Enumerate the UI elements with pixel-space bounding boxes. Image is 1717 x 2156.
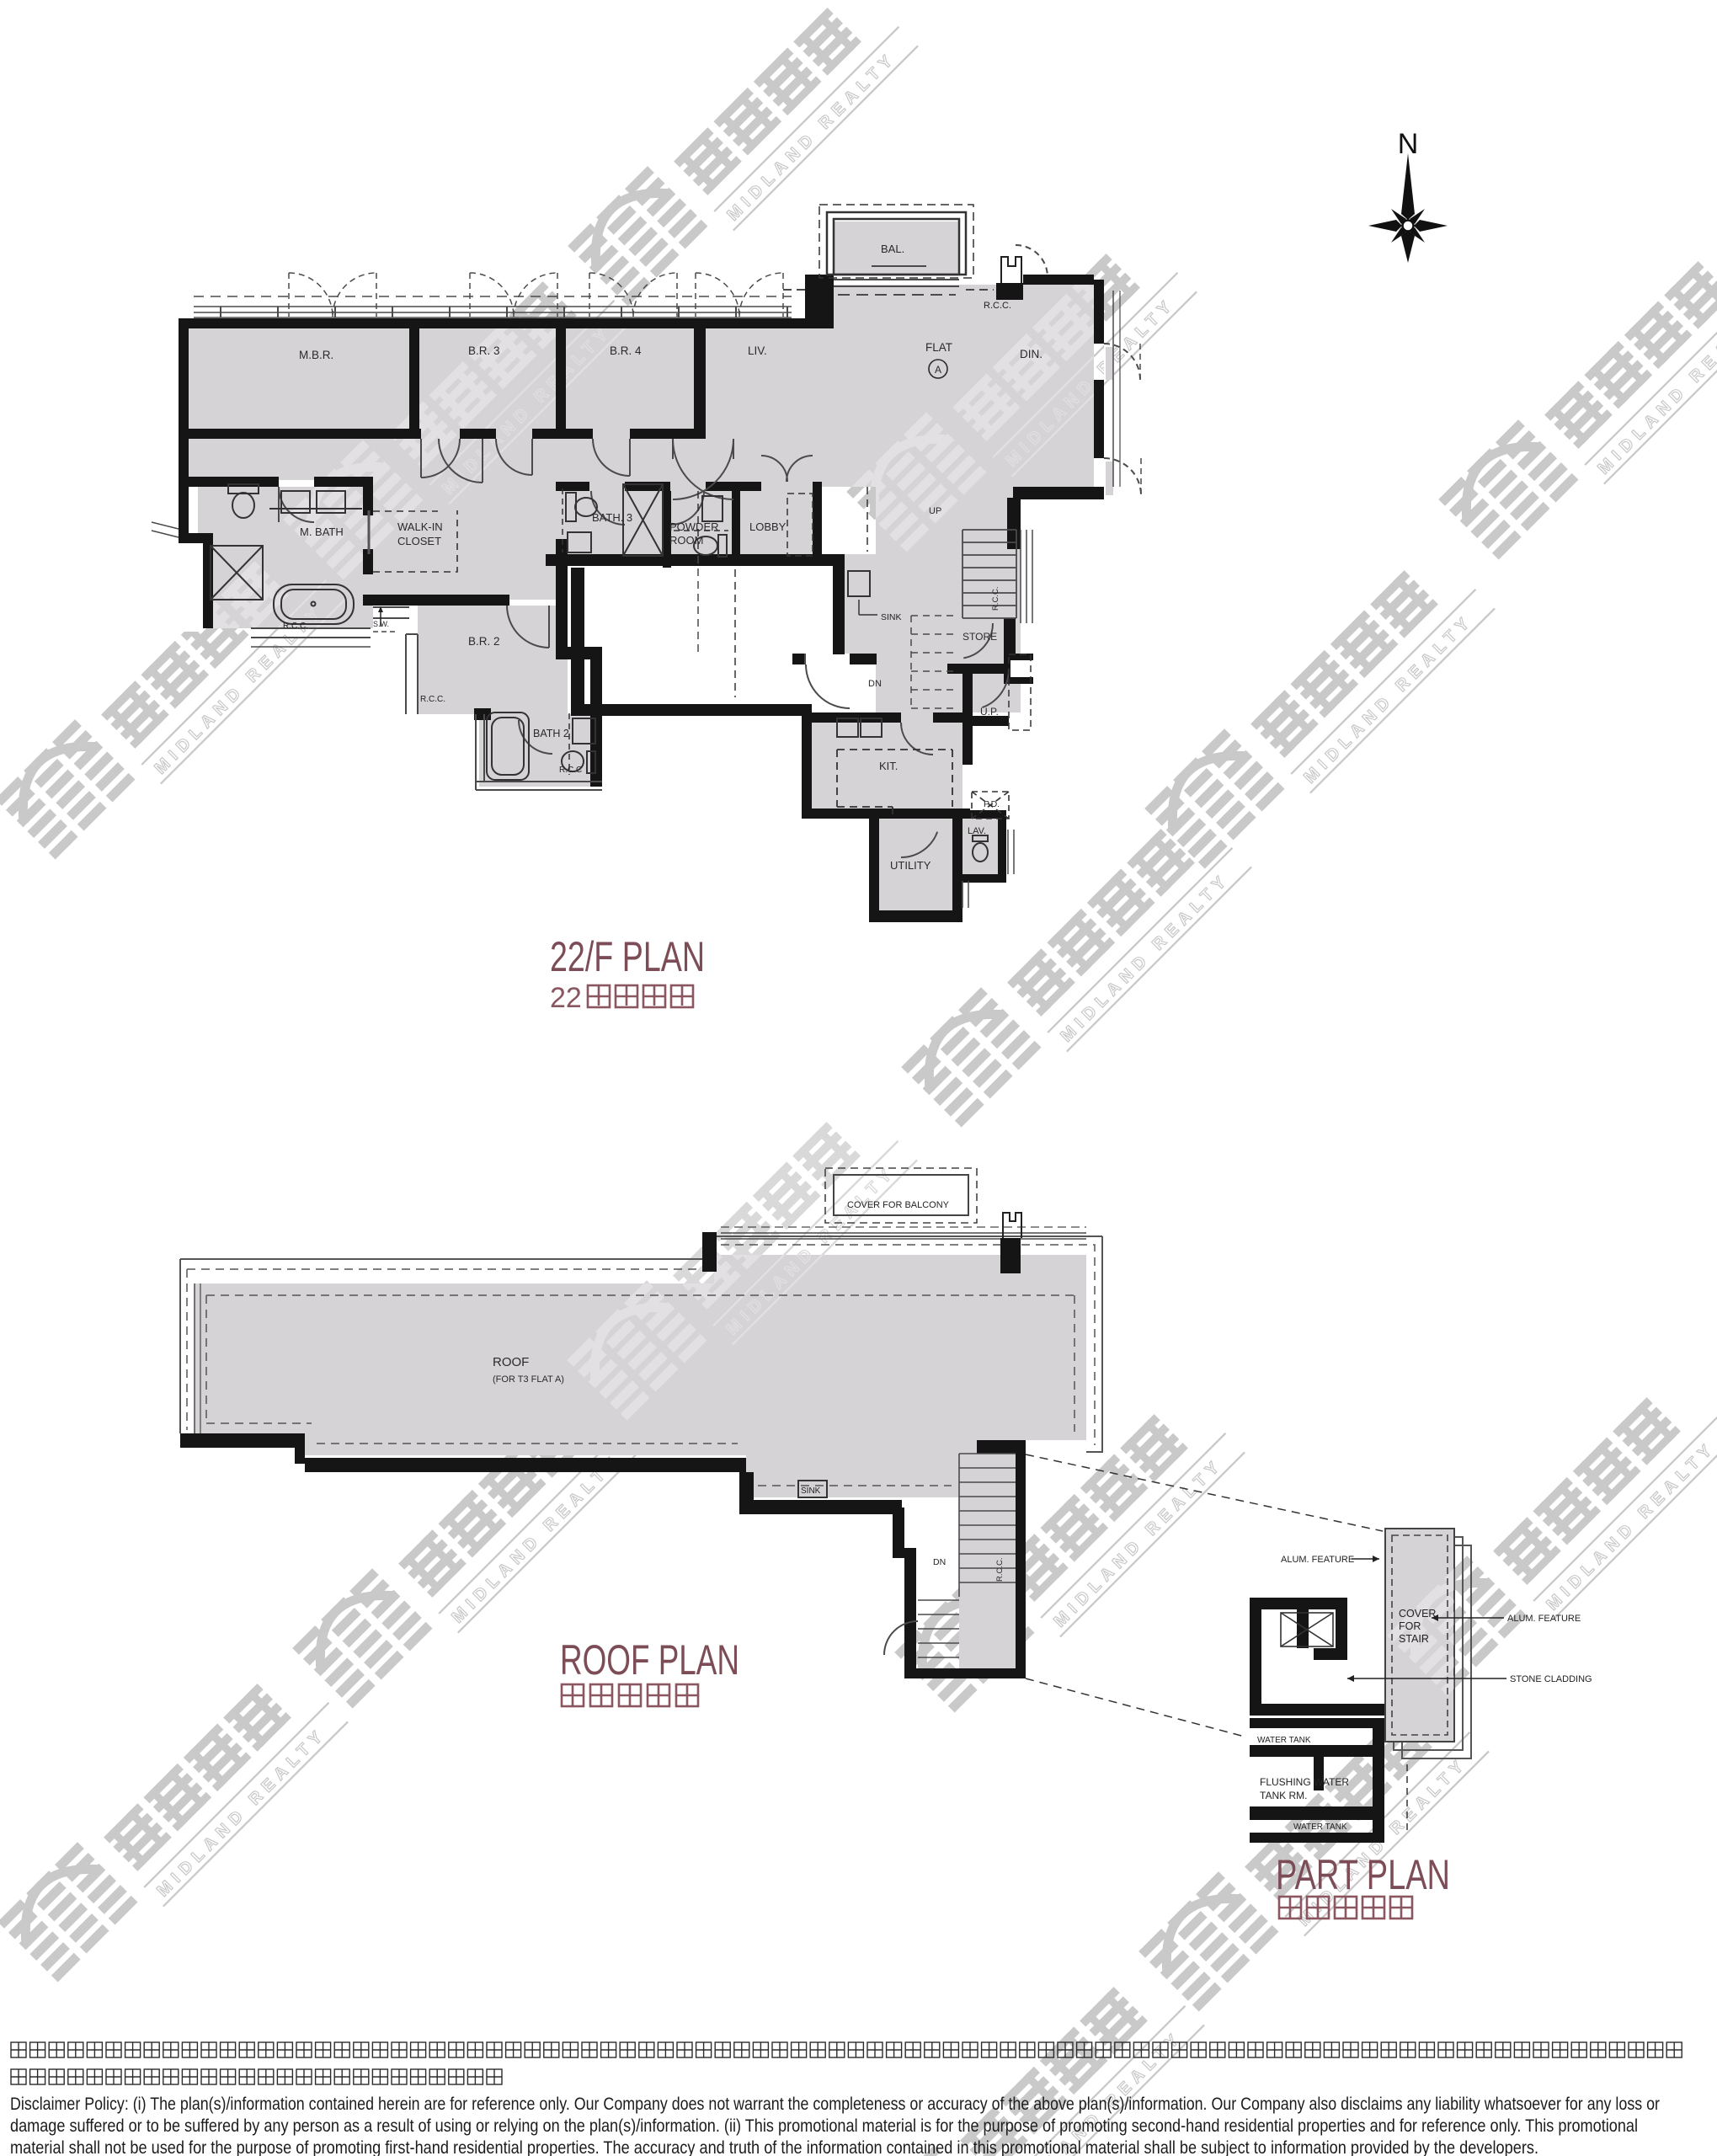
svg-text:DIN.: DIN. (1020, 348, 1042, 360)
svg-text:R.C.C.: R.C.C. (420, 695, 445, 704)
svg-text:CLOSET: CLOSET (397, 535, 441, 547)
svg-text:SINK: SINK (801, 1486, 821, 1496)
svg-text:STORE: STORE (962, 631, 997, 643)
svg-text:FOR: FOR (1399, 1620, 1421, 1632)
svg-text:U.P.: U.P. (980, 706, 999, 718)
svg-text:WATER TANK: WATER TANK (1257, 1736, 1311, 1745)
svg-text:LIV.: LIV. (748, 344, 767, 357)
svg-text:B.R. 2: B.R. 2 (468, 635, 500, 648)
svg-text:PART PLAN: PART PLAN (1276, 1851, 1450, 1898)
svg-text:R.C.C.: R.C.C. (984, 301, 1011, 311)
svg-text:LAV.: LAV. (968, 826, 986, 836)
svg-text:M. BATH: M. BATH (300, 526, 344, 538)
svg-text:STONE CLADDING: STONE CLADDING (1510, 1674, 1592, 1684)
svg-text:STAIR: STAIR (1399, 1633, 1429, 1645)
svg-text:ROOM: ROOM (669, 534, 703, 547)
svg-text:R.C.C.: R.C.C. (283, 622, 308, 631)
svg-text:BATH. 3: BATH. 3 (592, 511, 632, 524)
svg-text:POWDER: POWDER (669, 520, 719, 533)
svg-text:R.C.C: R.C.C (559, 766, 582, 775)
svg-text:DN: DN (868, 679, 882, 689)
svg-text:P.D.: P.D. (984, 799, 1000, 809)
svg-text:ALUM. FEATURE: ALUM. FEATURE (1281, 1555, 1354, 1565)
svg-text:M.B.R.: M.B.R. (299, 349, 333, 361)
svg-text:material shall not be used for: material shall not be used for the purpo… (10, 2137, 1538, 2156)
svg-text:COVER: COVER (1399, 1608, 1436, 1620)
svg-text:22: 22 (550, 982, 582, 1014)
svg-text:WALK-IN: WALK-IN (397, 520, 443, 533)
svg-text:R.C.C.: R.C.C. (995, 1558, 1005, 1582)
svg-text:UTILITY: UTILITY (890, 859, 931, 872)
svg-text:B.R. 3: B.R. 3 (468, 344, 500, 357)
svg-text:TANK RM.: TANK RM. (1260, 1790, 1307, 1801)
svg-text:(FOR T3 FLAT A): (FOR T3 FLAT A) (493, 1374, 564, 1385)
svg-text:BATH 2: BATH 2 (533, 728, 569, 739)
svg-text:N: N (1398, 128, 1419, 160)
svg-text:UP: UP (929, 506, 941, 516)
svg-text:A: A (935, 364, 941, 376)
svg-text:SINK: SINK (881, 612, 902, 622)
svg-text:FLAT: FLAT (925, 341, 952, 354)
svg-text:ALUM. FEATURE: ALUM. FEATURE (1507, 1614, 1581, 1624)
svg-text:WATER TANK: WATER TANK (1293, 1822, 1347, 1832)
svg-text:Disclaimer Policy: (i) The pla: Disclaimer Policy: (i) The plan(s)/infor… (10, 2094, 1660, 2114)
svg-text:R.C.C.: R.C.C. (991, 587, 1000, 611)
svg-text:BAL.: BAL. (881, 243, 904, 255)
svg-text:ROOF: ROOF (493, 1355, 529, 1369)
svg-text:FLUSHING WATER: FLUSHING WATER (1260, 1776, 1349, 1788)
svg-text:ROOF PLAN: ROOF PLAN (560, 1636, 739, 1684)
svg-text:DN: DN (933, 1557, 946, 1567)
svg-text:KIT.: KIT. (879, 760, 898, 772)
svg-text:damage suffered or to be suffe: damage suffered or to be suffered by any… (10, 2116, 1638, 2136)
svg-text:22/F PLAN: 22/F PLAN (550, 933, 705, 980)
svg-text:LOBBY: LOBBY (749, 520, 787, 533)
svg-text:B.R. 4: B.R. 4 (610, 344, 642, 357)
svg-text:COVER FOR BALCONY: COVER FOR BALCONY (847, 1200, 950, 1210)
